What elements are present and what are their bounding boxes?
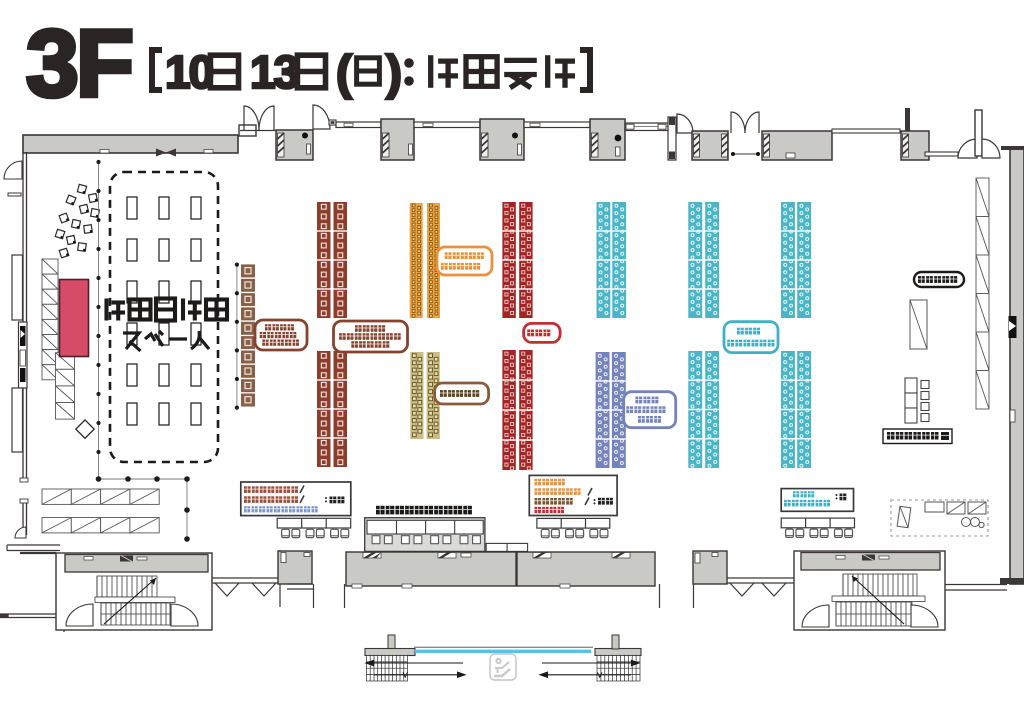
svg-text:13: 13 <box>250 46 298 98</box>
svg-text:): ) <box>386 47 402 100</box>
svg-text:10: 10 <box>165 46 213 98</box>
svg-text:3F: 3F <box>26 11 131 117</box>
svg-text:(: ( <box>336 47 352 100</box>
